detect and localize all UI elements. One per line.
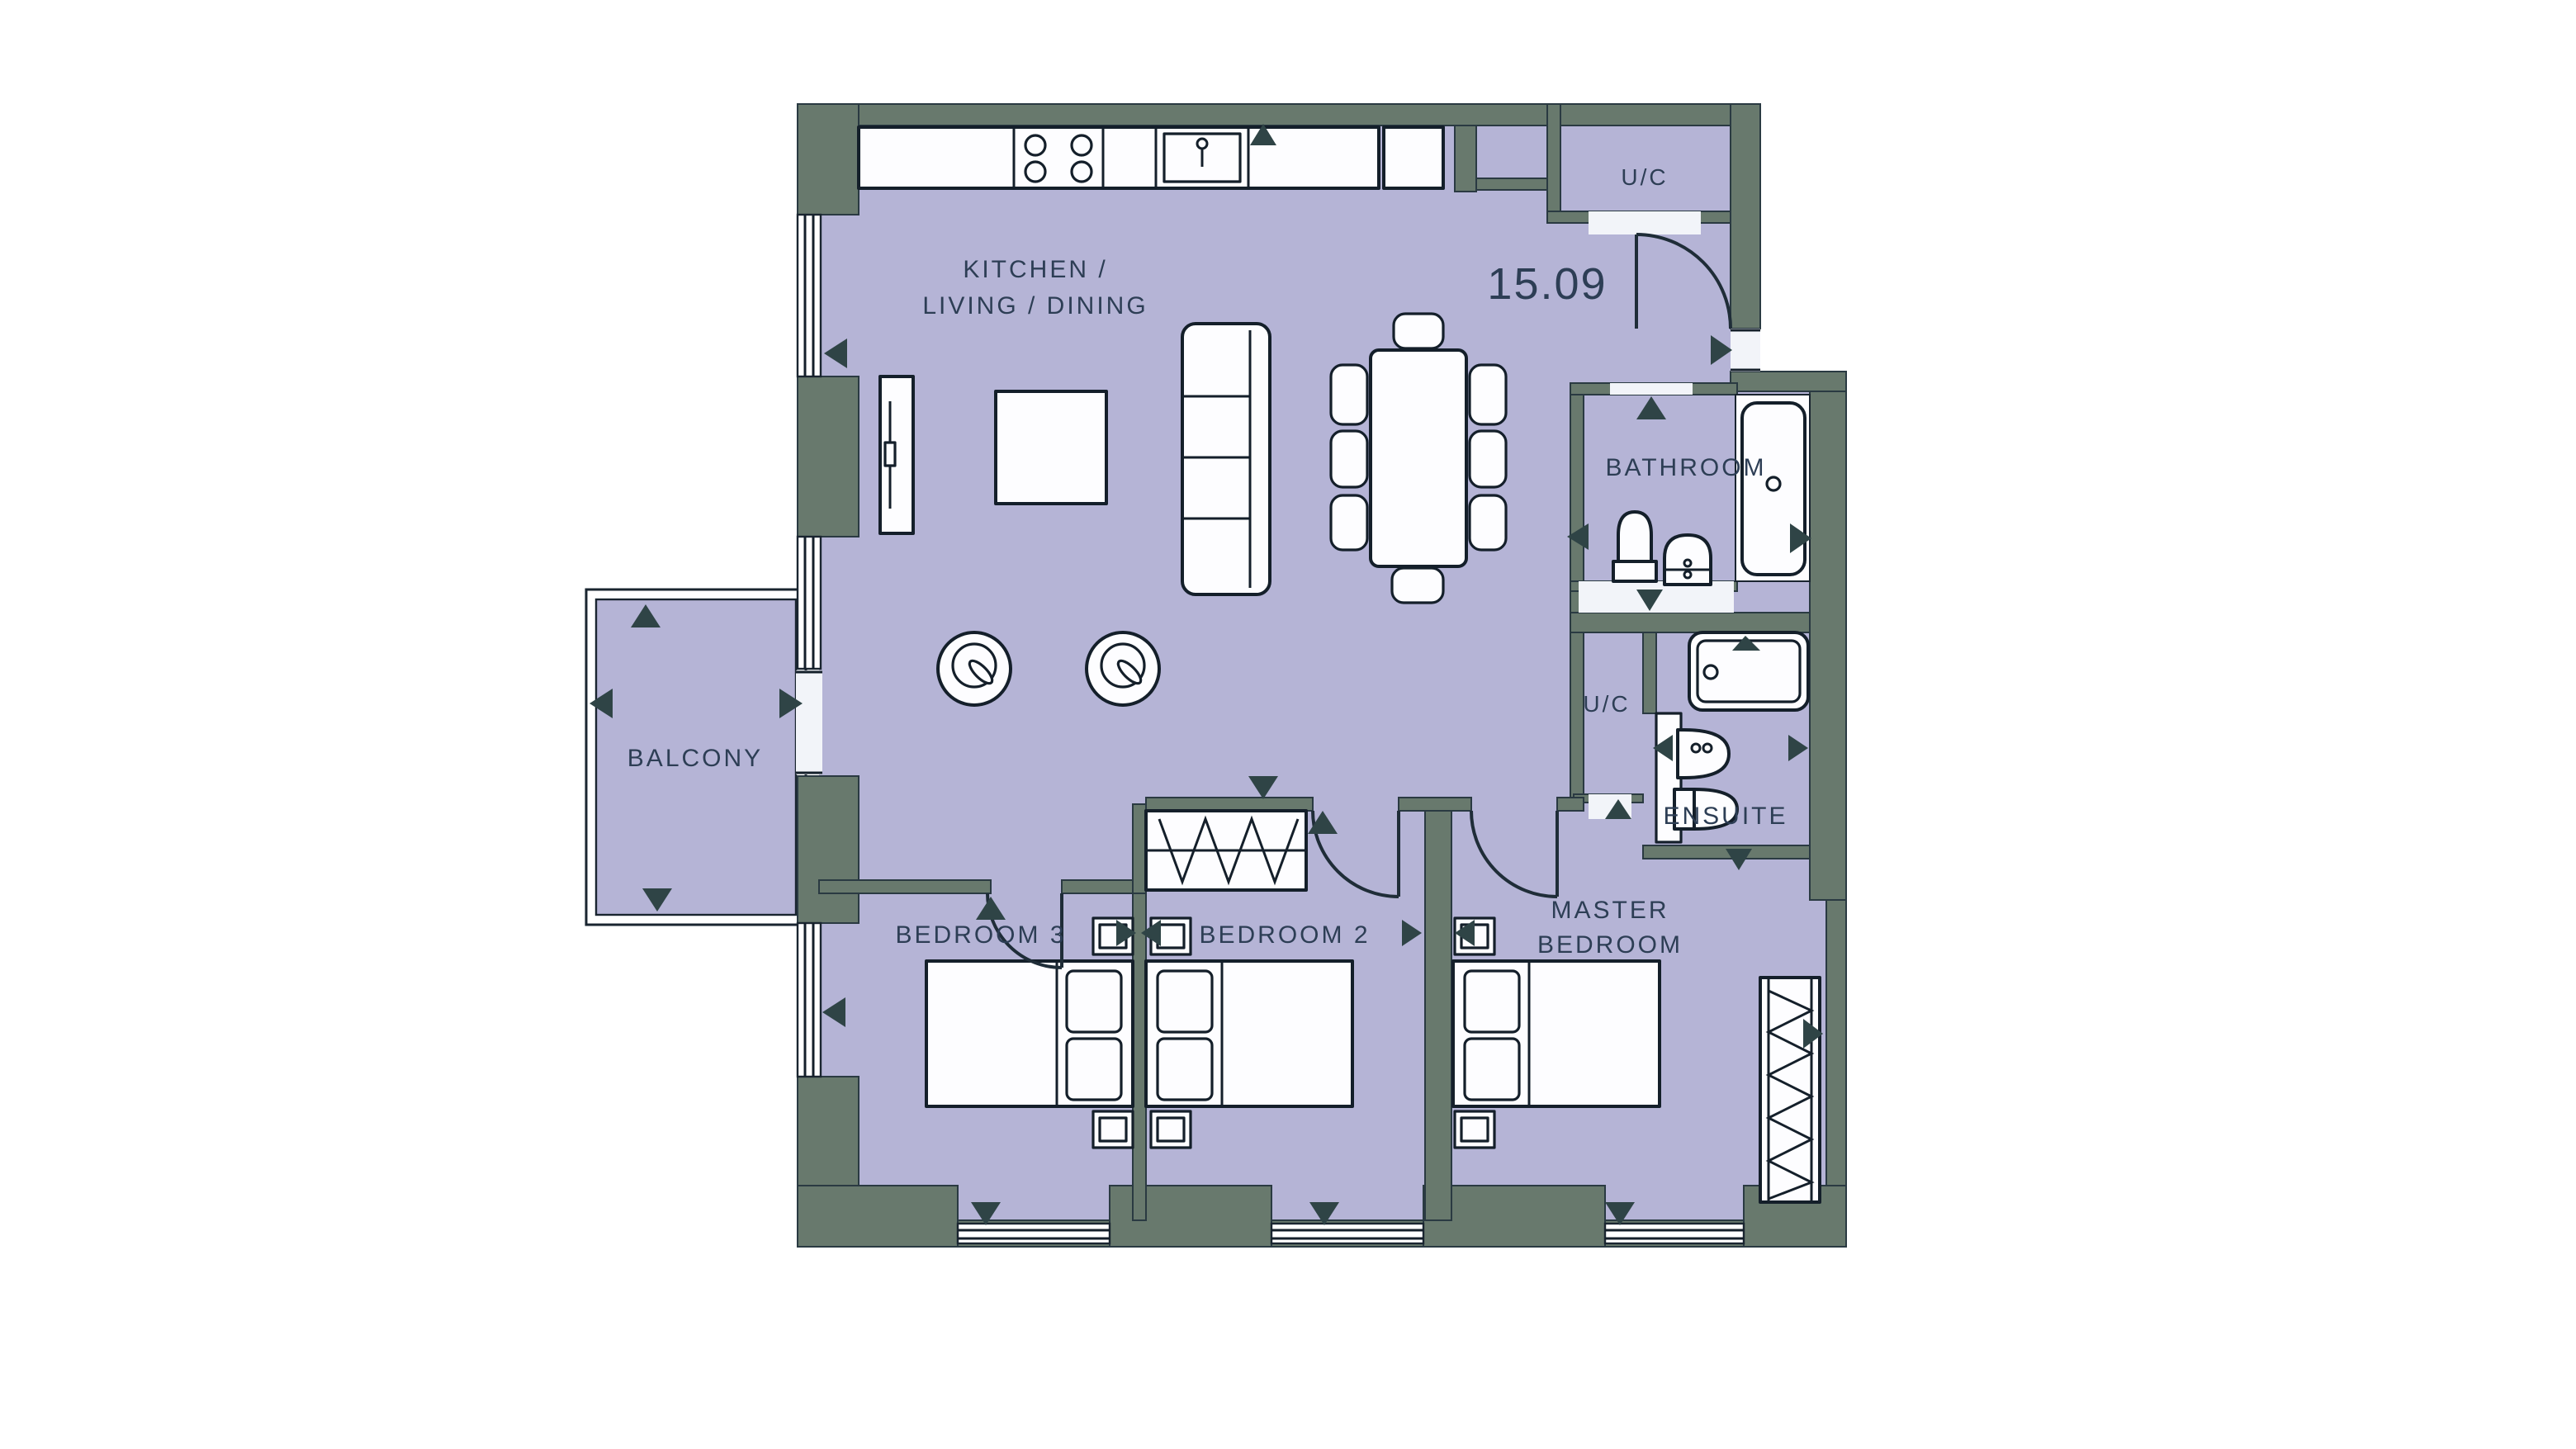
ensuite-basin — [1678, 730, 1729, 778]
wall-jog — [1133, 804, 1146, 893]
wall-ensuite-top — [1570, 613, 1810, 632]
hob-burner — [1072, 162, 1091, 182]
wall-ensuite-left — [1643, 632, 1656, 713]
hob-burner — [1072, 135, 1091, 155]
wall-corner-top-left — [798, 104, 859, 215]
label-bedroom2: BEDROOM 2 — [1199, 921, 1370, 949]
sofa-body — [1182, 324, 1270, 594]
label-kitchen-line2: LIVING / DINING — [922, 292, 1148, 320]
window-glass — [1605, 1224, 1744, 1243]
wall-top — [798, 104, 1760, 125]
pillow — [1158, 1039, 1212, 1100]
hob-burner — [1025, 162, 1045, 182]
nightstand-inner — [1158, 925, 1184, 948]
wall-right-step — [1731, 372, 1846, 391]
nightstand-inner — [1461, 1118, 1488, 1141]
wall-right-upper — [1731, 104, 1760, 329]
tv-bracket — [885, 443, 895, 466]
wall-divider-bed3-bed2 — [1133, 893, 1146, 1220]
kitchen-tall-unit — [1384, 127, 1443, 188]
label-kitchen-line1: KITCHEN / — [963, 256, 1107, 283]
entry-door-threshold — [1731, 329, 1760, 372]
sofa — [1182, 324, 1270, 594]
hall-wardrobe — [1146, 811, 1306, 890]
balcony-door-threshold — [796, 670, 822, 774]
wall-master-door-left — [1399, 798, 1471, 811]
kitchen-counter — [859, 127, 1379, 188]
shower-drain — [1704, 665, 1717, 679]
hob-burner — [1025, 135, 1045, 155]
window-left-1 — [798, 215, 821, 376]
label-master-line2: BEDROOM — [1537, 931, 1683, 959]
armchair-2 — [1087, 632, 1159, 705]
label-unit-number: 15.09 — [1487, 259, 1607, 309]
utility-door-threshold — [1589, 211, 1701, 234]
kitchen-fixtures — [859, 127, 1443, 188]
armchair-1 — [938, 632, 1011, 705]
dining-chair — [1470, 365, 1506, 424]
pillow — [1465, 1039, 1519, 1100]
window-bottom-bedroom2 — [1271, 1224, 1423, 1243]
dining-table — [1371, 350, 1466, 566]
label-utility-corridor: U/C — [1583, 691, 1630, 717]
window-left-3-bedroom3 — [798, 923, 821, 1077]
dining-chair — [1331, 495, 1367, 550]
master-wardrobe — [1760, 978, 1820, 1202]
label-master-line1: MASTER — [1551, 897, 1669, 924]
wall-right-bath-block — [1810, 391, 1846, 900]
bathtub-tap — [1767, 477, 1780, 490]
window-glass — [798, 537, 821, 669]
dining-chair — [1331, 431, 1367, 487]
toilet-bowl — [1618, 512, 1651, 561]
wall-utility-left — [1547, 104, 1560, 223]
dining-chair — [1392, 568, 1443, 603]
label-bathroom: BATHROOM — [1605, 454, 1766, 481]
floor-plan-drawing: KITCHEN / LIVING / DINING 15.09 U/C BATH… — [0, 0, 2576, 1449]
wall-bedroom3-top-b — [1062, 880, 1134, 893]
floor-plan-page: KITCHEN / LIVING / DINING 15.09 U/C BATH… — [0, 0, 2576, 1449]
pillow — [1067, 1039, 1121, 1100]
wall-bottom-block-1 — [798, 1186, 958, 1247]
bathroom-door-gap — [1610, 383, 1693, 395]
nightstand-inner — [1158, 1118, 1184, 1141]
wall-left-pier-1 — [798, 376, 859, 537]
window-bottom-master — [1605, 1224, 1744, 1243]
dining-chair — [1470, 495, 1506, 550]
window-glass — [798, 923, 821, 1077]
dining-chair — [1331, 365, 1367, 424]
pillow — [1067, 971, 1121, 1032]
pillow — [1158, 971, 1212, 1032]
wall-bedroom3-top-a — [819, 880, 991, 893]
window-glass — [958, 1224, 1110, 1243]
pillow — [1465, 971, 1519, 1032]
coffee-table — [996, 391, 1106, 504]
window-left-2 — [798, 537, 821, 669]
label-ensuite: ENSUITE — [1663, 803, 1788, 830]
dining-chair — [1394, 314, 1443, 348]
label-balcony: BALCONY — [627, 745, 763, 772]
window-glass — [798, 215, 821, 376]
wall-wardrobe-top — [1146, 798, 1313, 811]
label-utility-hall: U/C — [1621, 164, 1668, 190]
wall-left-pier-2 — [798, 776, 859, 923]
window-glass — [1271, 1224, 1423, 1243]
window-bottom-bedroom3 — [958, 1224, 1110, 1243]
wall-divider-bed2-master — [1425, 811, 1451, 1220]
toilet-cistern — [1613, 561, 1656, 581]
wall-master-door-right — [1557, 798, 1584, 811]
nightstand-inner — [1100, 1118, 1126, 1141]
dining-chair — [1470, 431, 1506, 487]
wall-kitchen-stub — [1455, 125, 1476, 192]
label-bedroom3: BEDROOM 3 — [895, 921, 1066, 949]
wall-ensuite-bottom — [1643, 845, 1810, 859]
